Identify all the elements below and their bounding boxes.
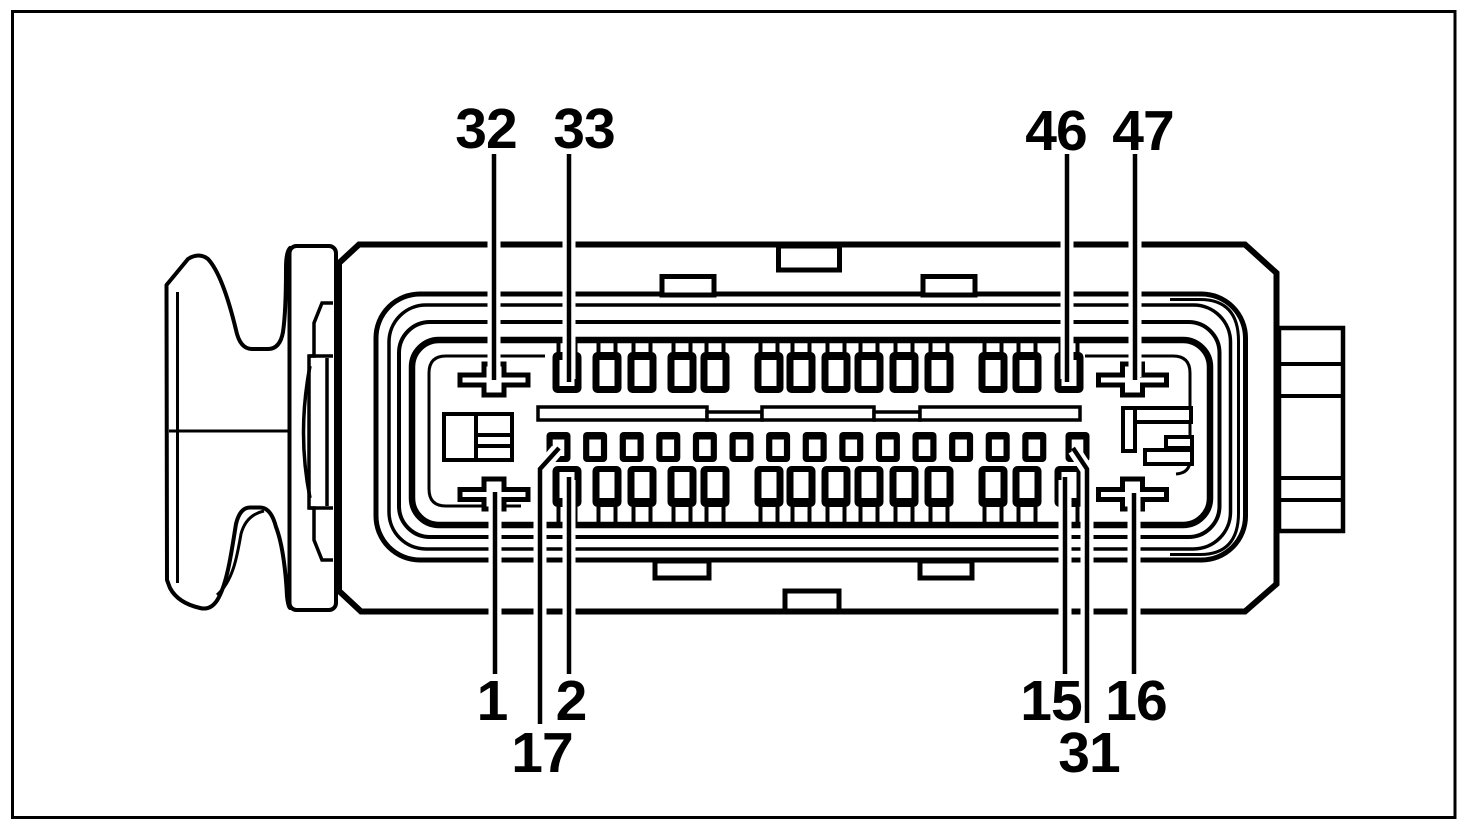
svg-text:46: 46 (1025, 99, 1086, 163)
svg-text:17: 17 (511, 721, 572, 785)
svg-text:33: 33 (553, 97, 614, 161)
svg-text:32: 32 (455, 97, 516, 161)
svg-text:47: 47 (1112, 99, 1173, 163)
svg-text:31: 31 (1058, 721, 1120, 785)
svg-text:1: 1 (477, 669, 508, 733)
